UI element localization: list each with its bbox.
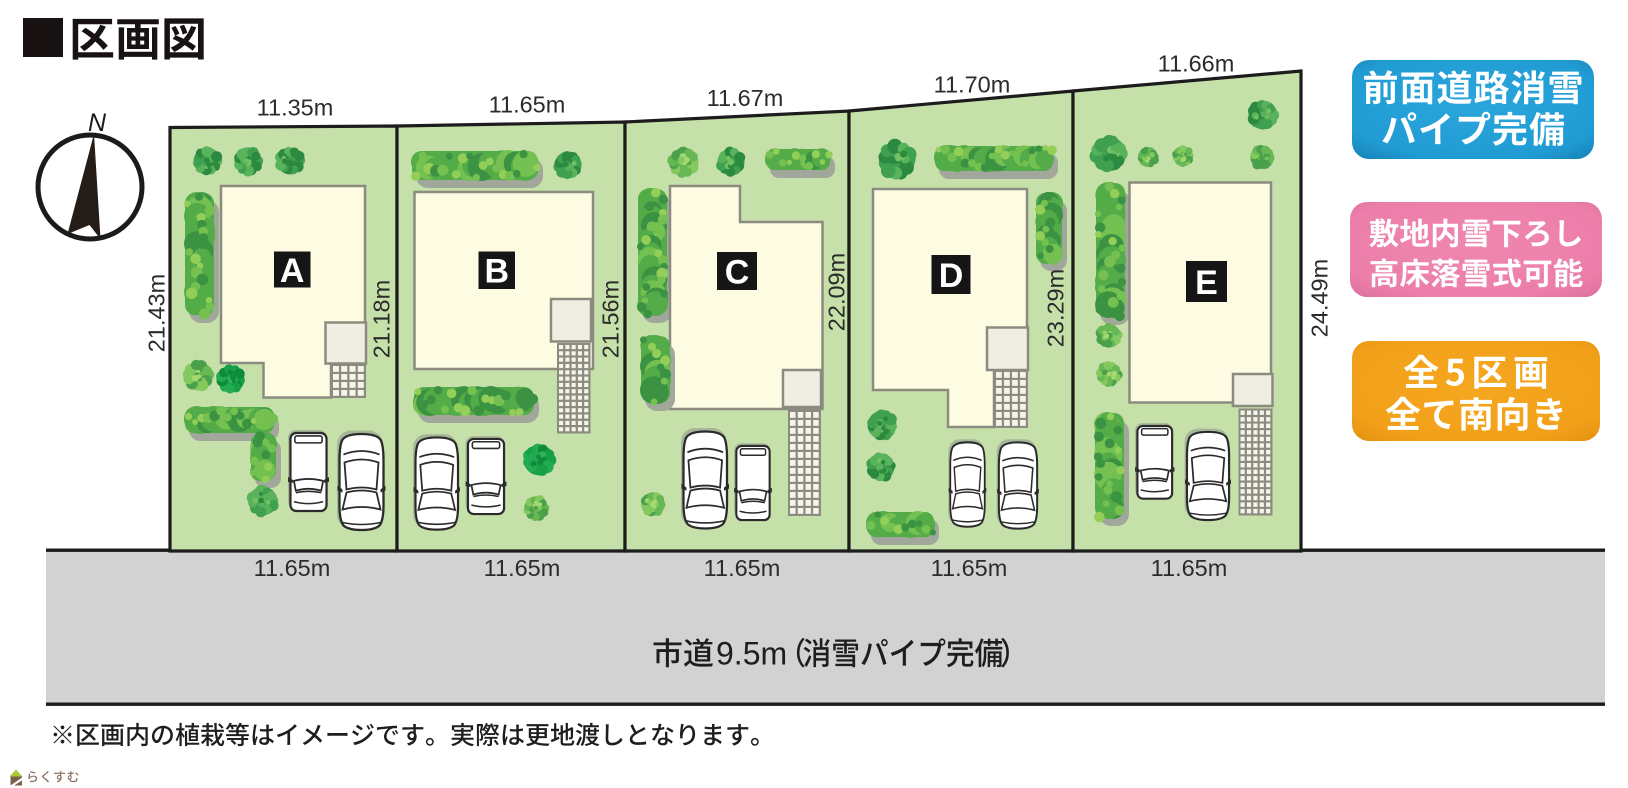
- svg-text:11.65m: 11.65m: [931, 555, 1008, 581]
- svg-text:E: E: [1195, 264, 1218, 302]
- svg-text:24.49m: 24.49m: [1306, 259, 1332, 337]
- svg-text:11.65m: 11.65m: [254, 555, 331, 581]
- svg-text:11.65m: 11.65m: [1151, 555, 1228, 581]
- svg-text:11.70m: 11.70m: [934, 71, 1011, 97]
- svg-text:9.5m: 9.5m: [716, 636, 787, 672]
- svg-text:11.65m: 11.65m: [704, 555, 781, 581]
- svg-text:11.35m: 11.35m: [257, 94, 334, 120]
- svg-text:21.56m: 21.56m: [597, 280, 623, 358]
- svg-text:11.65m: 11.65m: [484, 555, 561, 581]
- svg-text:21.43m: 21.43m: [143, 274, 169, 352]
- svg-text:A: A: [280, 252, 305, 290]
- svg-text:N: N: [88, 109, 107, 137]
- svg-text:21.18m: 21.18m: [368, 280, 394, 358]
- svg-text:B: B: [485, 253, 510, 291]
- svg-text:23.29m: 23.29m: [1042, 269, 1068, 347]
- svg-text:11.65m: 11.65m: [489, 91, 566, 117]
- svg-text:C: C: [725, 253, 750, 291]
- svg-text:22.09m: 22.09m: [823, 253, 849, 331]
- svg-text:11.66m: 11.66m: [1158, 50, 1235, 76]
- svg-text:11.67m: 11.67m: [707, 85, 784, 111]
- svg-text:D: D: [939, 257, 964, 295]
